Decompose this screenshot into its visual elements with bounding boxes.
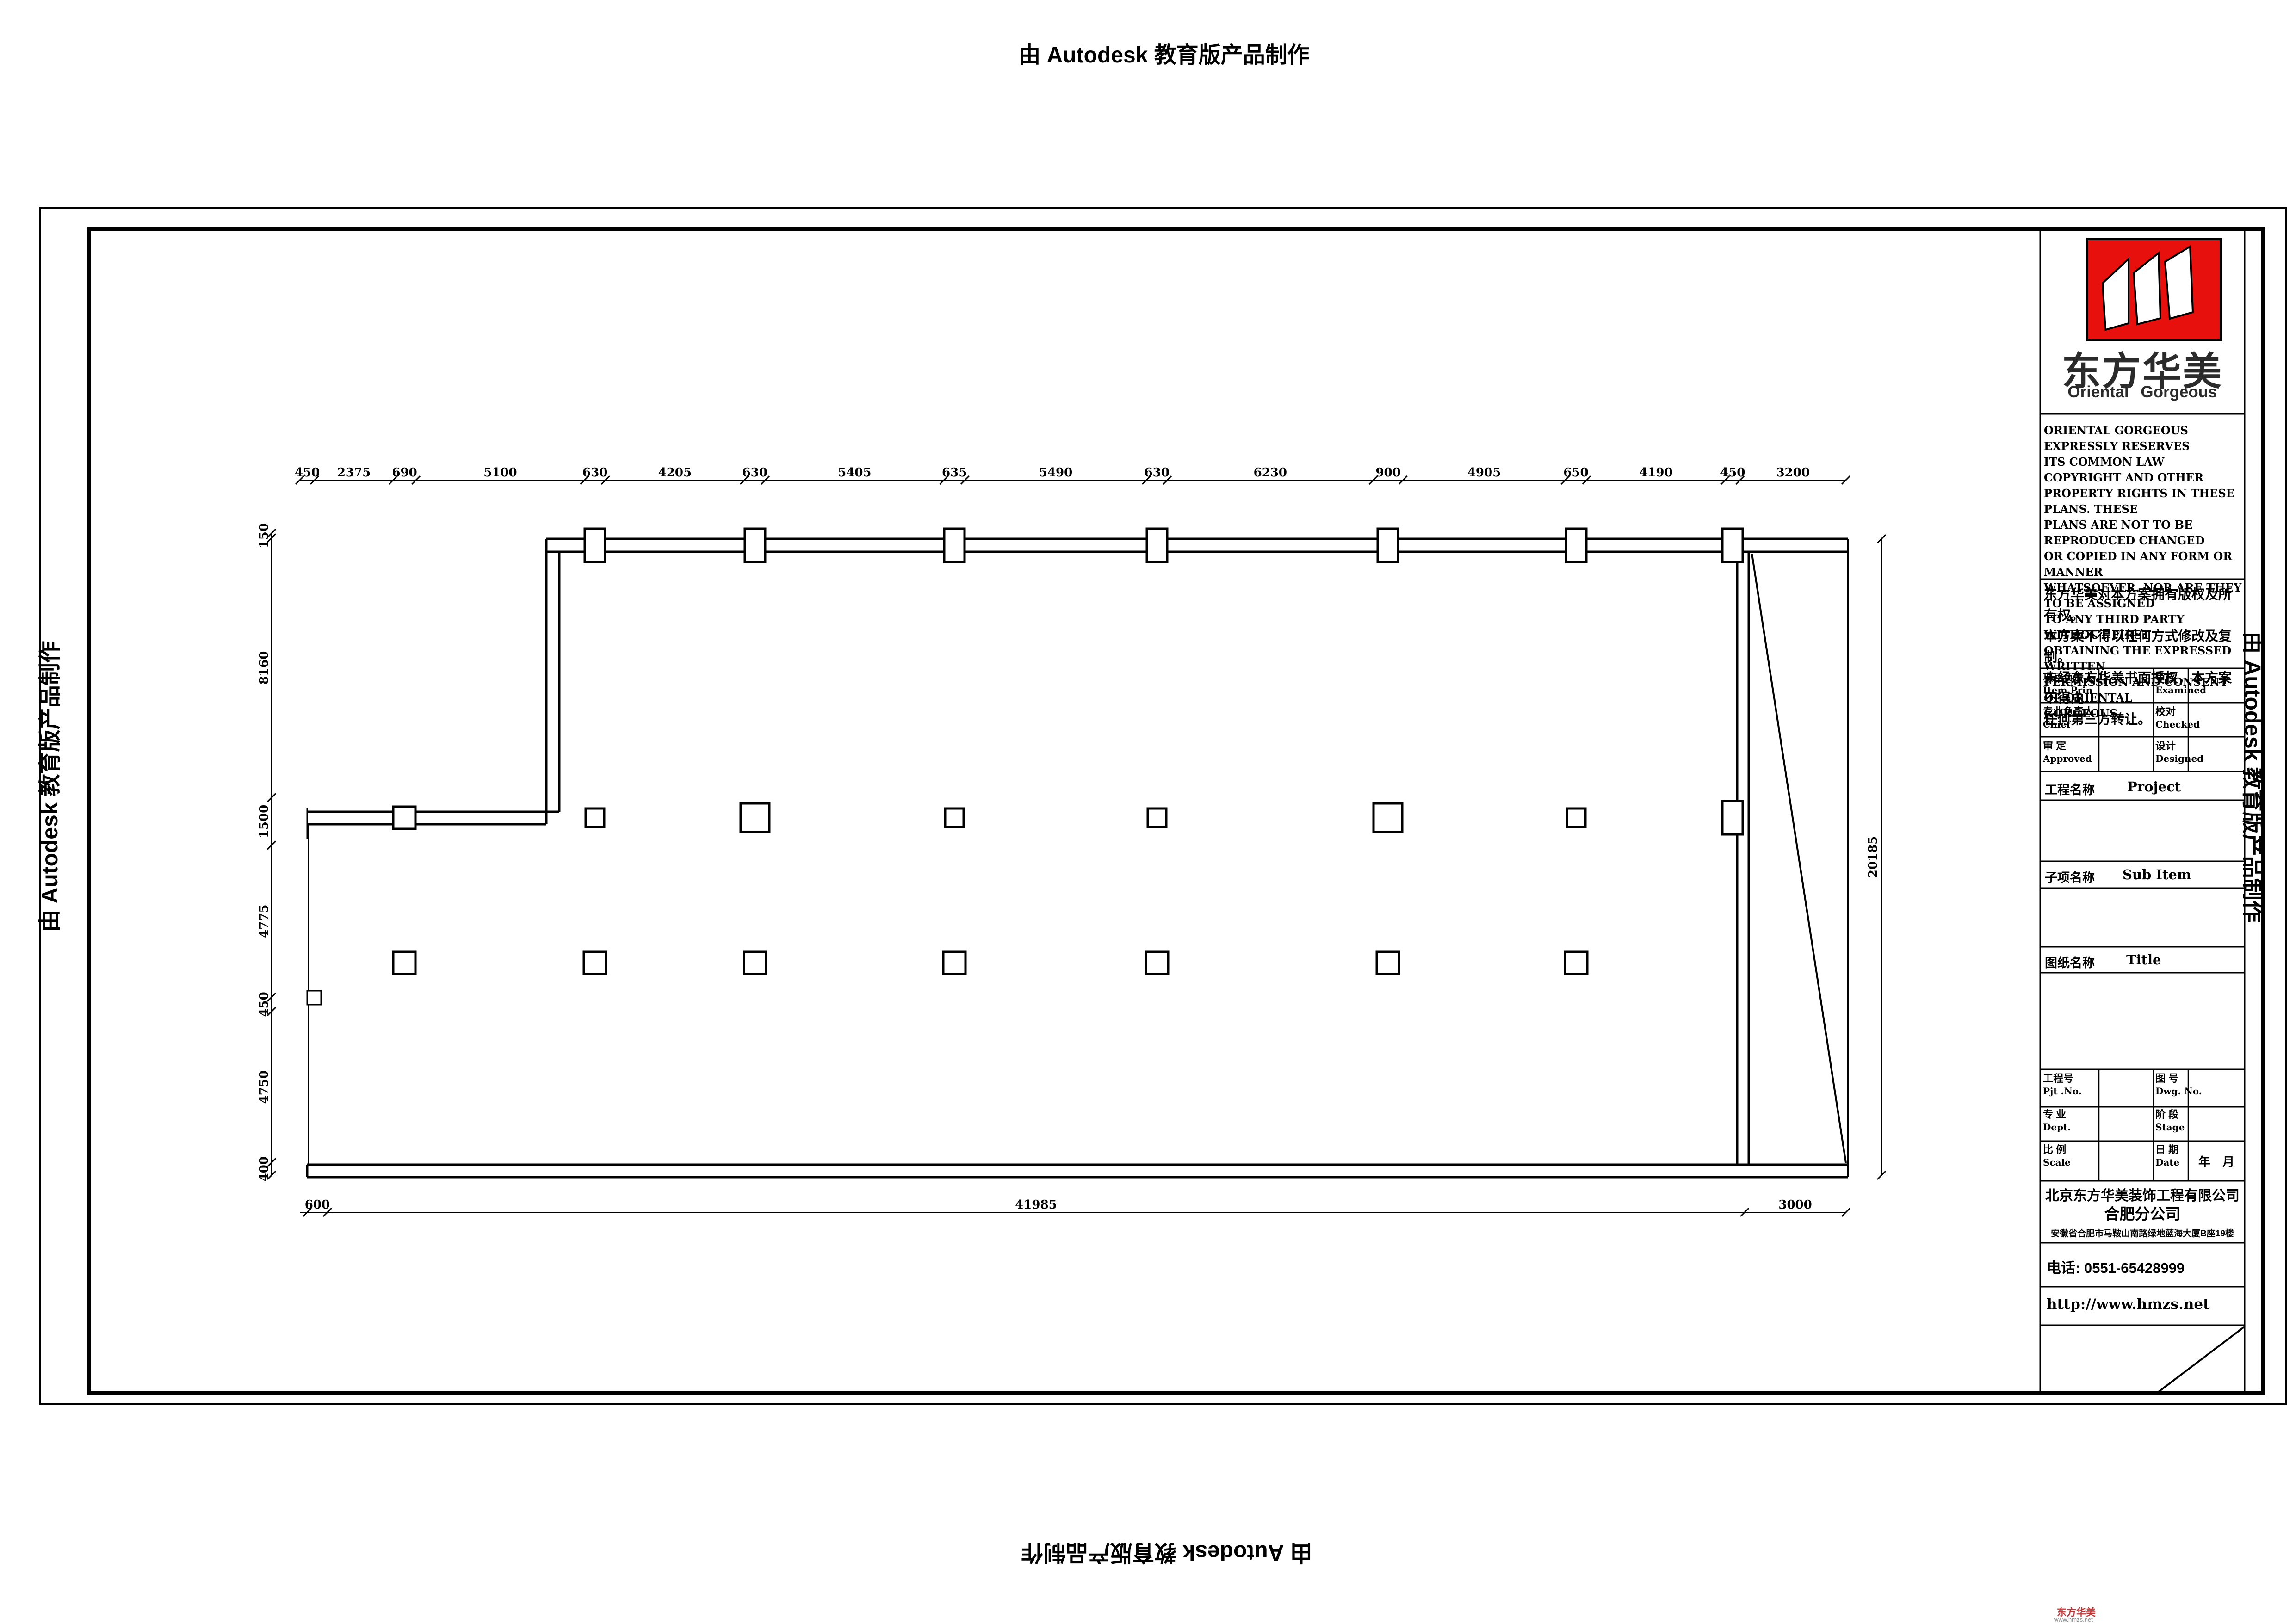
sub-item-label-cn: 子项名称	[2045, 868, 2095, 886]
dimension-label: 3200	[1776, 466, 1809, 480]
dimension-label: 600	[305, 1198, 330, 1212]
field-checked: 校对 Checked	[2155, 705, 2210, 730]
dimension-label: 20185	[1866, 836, 1880, 878]
field-examined: 审核 Examined	[2155, 671, 2210, 696]
company-address: 安徽省合肥市马鞍山南路绿地蓝海大厦B座19楼	[2041, 1227, 2244, 1239]
field-project-no: 工程号 Pjt .No.	[2043, 1072, 2098, 1097]
dimension-label: 630	[582, 466, 607, 480]
dimension-label: 5490	[1039, 466, 1072, 480]
dimension-label: 635	[942, 466, 967, 480]
dimension-label: 650	[1563, 466, 1588, 480]
dimension-label: 450	[1720, 466, 1745, 480]
autodesk-watermark-left: 由 Autodesk 教育版产品制作	[38, 620, 62, 953]
dimension-label: 2375	[337, 466, 371, 480]
field-approved: 审 定 Approved	[2043, 740, 2098, 765]
sheet-title-label-cn: 图纸名称	[2045, 953, 2095, 971]
drawing-sheet: 4502375690510063042056305405635549063062…	[0, 0, 2296, 1623]
field-stage: 阶 段 Stage	[2155, 1108, 2210, 1133]
brand-name-en: Oriental Gorgeous	[2041, 383, 2244, 401]
splayed-wall-diagonal	[1752, 554, 1846, 1163]
plotted-cad-sheet: { "watermark": { "text": "由 Autodesk 教育版…	[0, 0, 2296, 1623]
company-branch: 合肥分公司	[2041, 1202, 2244, 1224]
cad-canvas: 4502375690510063042056305405635549063062…	[0, 0, 2296, 1623]
dimension-label: 4190	[1639, 466, 1672, 480]
sub-item-label-en: Sub Item	[2123, 867, 2191, 882]
dimension-label: 630	[1145, 466, 1170, 480]
field-designed: 设计 Designed	[2155, 740, 2210, 765]
columns	[307, 529, 1743, 1005]
company-phone: 电话: 0551-65428999	[2047, 1256, 2185, 1277]
dimension-label: 6230	[1254, 466, 1287, 480]
walls	[307, 539, 1848, 1177]
autodesk-watermark-top: 由 Autodesk 教育版产品制作	[997, 43, 1331, 68]
field-item-principal: 项目负责人 Item.Prin	[2043, 671, 2098, 696]
dimension-lines	[272, 480, 1881, 1212]
dimension-label: 690	[392, 466, 417, 480]
oriental-gorgeous-logo	[2087, 239, 2221, 340]
dimension-label: 4750	[257, 1070, 271, 1104]
sheet-title-label-en: Title	[2126, 952, 2161, 968]
dimension-label: 450	[295, 466, 320, 480]
dimension-label: 5100	[483, 466, 517, 480]
dimension-label: 8160	[257, 651, 271, 685]
project-name-label-en: Project	[2127, 779, 2181, 795]
dimension-label: 150	[257, 523, 271, 548]
autodesk-watermark-bottom: 由 Autodesk 教育版产品制作	[1000, 1540, 1333, 1564]
dimension-label: 3000	[1778, 1198, 1812, 1212]
dimension-label: 630	[743, 466, 767, 480]
field-drawing-no: 图 号 Dwg. No.	[2155, 1072, 2210, 1097]
title-block-diagonal	[2157, 1327, 2245, 1393]
dimension-annotations: 4502375690510063042056305405635549063062…	[257, 466, 1886, 1216]
dimension-label: 41985	[1015, 1198, 1057, 1212]
dimension-label: 1500	[257, 805, 271, 838]
sheet-frames	[40, 208, 2286, 1404]
field-scale: 比 例 Scale	[2043, 1143, 2098, 1168]
dimension-label: 900	[1375, 466, 1400, 480]
dimension-label: 5405	[838, 466, 871, 480]
dimension-label: 4205	[658, 466, 692, 480]
dimension-label: 4775	[257, 905, 271, 938]
field-chief: 专业负责人 Chief	[2043, 705, 2098, 730]
dimension-label: 4905	[1467, 466, 1501, 480]
project-name-label-cn: 工程名称	[2045, 780, 2095, 798]
company-website: http://www.hmzs.net	[2047, 1296, 2209, 1313]
corner-site-mark: www.hmzs.net	[2054, 1616, 2093, 1623]
field-dept: 专 业 Dept.	[2043, 1108, 2098, 1133]
date-year-month-value: 年 月	[2188, 1153, 2245, 1170]
